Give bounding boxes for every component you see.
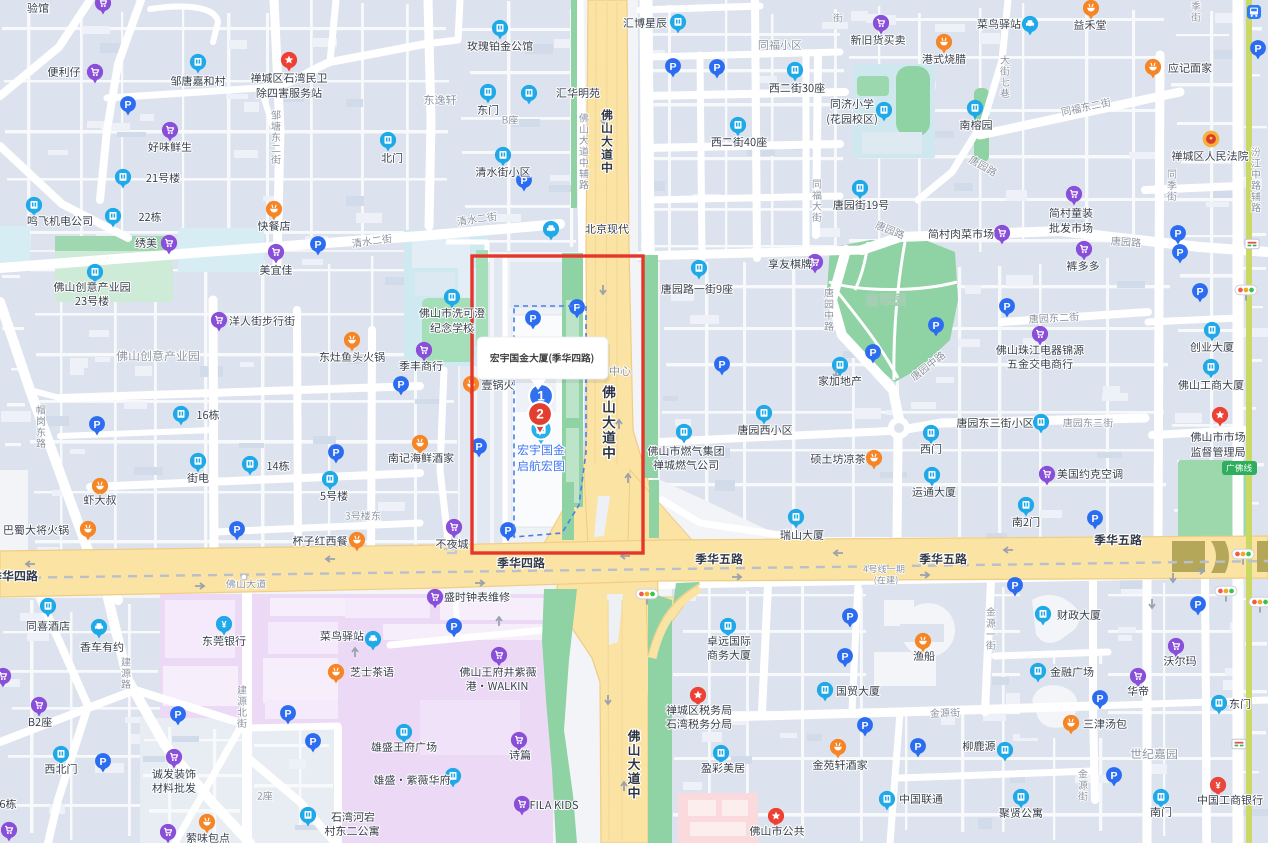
svg-text:2: 2 (536, 407, 544, 422)
